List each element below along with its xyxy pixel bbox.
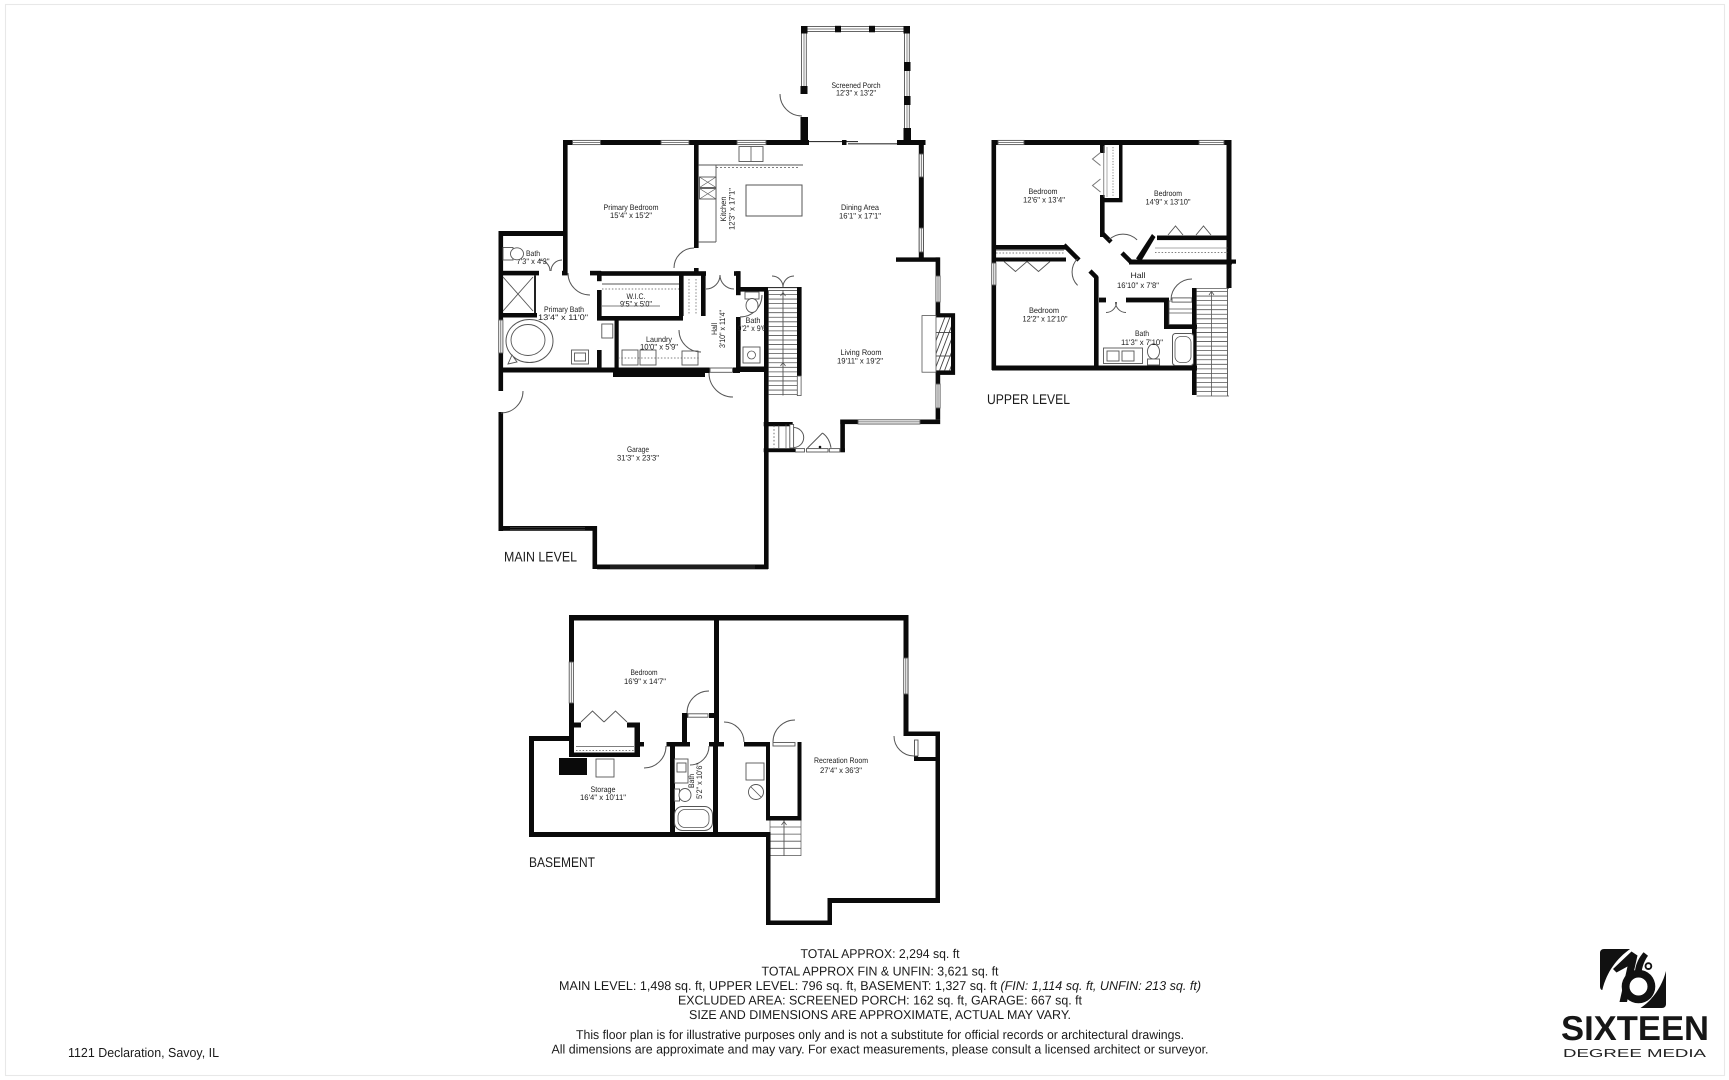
svg-text:Recreation Room: Recreation Room [814, 756, 868, 765]
svg-text:Hall: Hall [1131, 271, 1146, 280]
svg-text:BASEMENT: BASEMENT [529, 854, 595, 870]
svg-text:27'4" x 36'3": 27'4" x 36'3" [820, 766, 862, 775]
svg-text:EXCLUDED AREA: SCREENED PORCH:: EXCLUDED AREA: SCREENED PORCH: 162 sq. f… [678, 993, 1082, 1008]
svg-text:9'5" x 5'0": 9'5" x 5'0" [620, 300, 652, 309]
svg-text:Bath: Bath [1135, 329, 1149, 338]
svg-text:12'3" x 13'2": 12'3" x 13'2" [836, 89, 876, 98]
svg-text:DEGREE MEDIA: DEGREE MEDIA [1563, 1048, 1707, 1060]
svg-text:16'10" x 7'8": 16'10" x 7'8" [1117, 281, 1159, 290]
svg-text:13'4" x 11'0": 13'4" x 11'0" [538, 313, 588, 322]
svg-text:TOTAL APPROX FIN & UNFIN: 3,62: TOTAL APPROX FIN & UNFIN: 3,621 sq. ft [762, 964, 999, 979]
svg-text:12'2" x 12'10": 12'2" x 12'10" [1023, 315, 1068, 324]
svg-text:9'2" x 9'6": 9'2" x 9'6" [738, 324, 769, 333]
svg-text:16'4" x 10'11": 16'4" x 10'11" [580, 793, 626, 802]
svg-text:MAIN LEVEL: 1,498 sq. ft, UPPE: MAIN LEVEL: 1,498 sq. ft, UPPER LEVEL: 7… [559, 978, 1201, 993]
svg-text:This floor plan is for illustr: This floor plan is for illustrative purp… [576, 1027, 1184, 1042]
svg-text:SIXTEEN: SIXTEEN [1561, 1010, 1709, 1048]
svg-text:10'0" x 5'9": 10'0" x 5'9" [640, 343, 678, 352]
svg-text:5'2" x 10'6": 5'2" x 10'6" [695, 763, 704, 799]
svg-text:All dimensions are approximate: All dimensions are approximate and may v… [552, 1042, 1209, 1057]
svg-text:11'3" x 7'10": 11'3" x 7'10" [1121, 338, 1163, 347]
svg-text:16'1" x 17'1": 16'1" x 17'1" [839, 212, 881, 221]
svg-text:12'3" x 17'1": 12'3" x 17'1" [728, 188, 737, 230]
svg-text:Bedroom: Bedroom [631, 668, 658, 677]
svg-text:12'6" x 13'4": 12'6" x 13'4" [1023, 196, 1065, 205]
svg-text:19'11" x 19'2": 19'11" x 19'2" [837, 357, 883, 366]
svg-text:TOTAL APPROX: 2,294 sq. ft: TOTAL APPROX: 2,294 sq. ft [801, 946, 960, 961]
svg-text:1121 Declaration, Savoy, IL: 1121 Declaration, Savoy, IL [68, 1045, 219, 1060]
svg-text:31'3" x 23'3": 31'3" x 23'3" [617, 454, 659, 463]
svg-text:16'9" x 14'7": 16'9" x 14'7" [624, 677, 666, 686]
svg-text:14'9" x 13'10": 14'9" x 13'10" [1146, 198, 1191, 207]
svg-text:UPPER LEVEL: UPPER LEVEL [987, 391, 1070, 407]
svg-text:15'4" x 15'2": 15'4" x 15'2" [610, 211, 652, 220]
svg-text:MAIN LEVEL: MAIN LEVEL [504, 549, 577, 565]
svg-text:3'10" x 11'4": 3'10" x 11'4" [718, 310, 727, 348]
svg-text:SIZE AND DIMENSIONS ARE APPROX: SIZE AND DIMENSIONS ARE APPROXIMATE, ACT… [689, 1007, 1071, 1022]
